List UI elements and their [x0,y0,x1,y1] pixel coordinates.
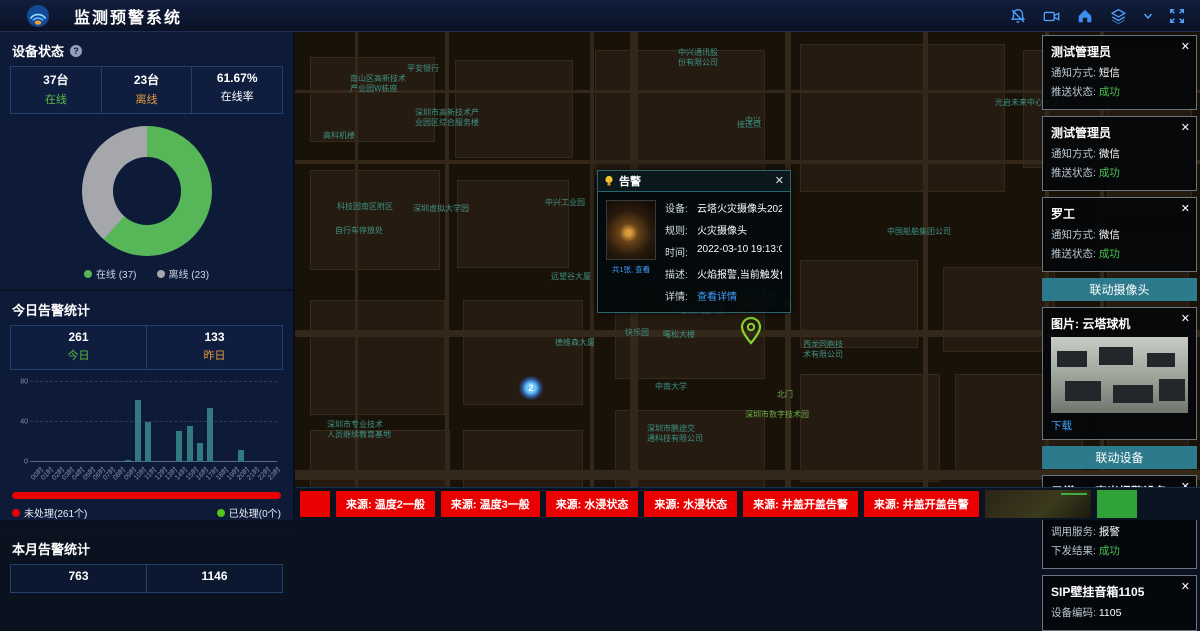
stat-value: 23台 [102,71,192,88]
stat-value: 133 [147,330,282,344]
map-label: 中南大学 [655,382,687,392]
bar [207,408,213,462]
legend-label: 离线 (23) [169,266,210,281]
card-field-row: 调用服务: 报警 [1051,524,1188,539]
camera-snapshot-card: ✕图片: 云塔球机下载 [1042,307,1197,440]
stat-cell: 61.67%在线率 [191,67,282,113]
alert-location-pin[interactable] [739,316,763,346]
stat-value: 37台 [11,71,101,88]
map-road [445,32,449,520]
card-title: 测试管理员 [1051,43,1174,60]
device-status-title: 设备状态 ? [10,36,283,66]
gridline [30,381,277,382]
notification-card: ✕罗工通知方式: 微信推送状态: 成功 [1042,197,1197,272]
card-field-value: 成功 [1099,167,1120,179]
map-label: 科技园南区附区 [337,202,393,212]
bar [145,422,151,462]
green-screen-thumbnail[interactable] [1097,490,1137,518]
close-icon[interactable]: ✕ [775,176,784,187]
page-title: 监测预警系统 [74,4,182,28]
close-icon[interactable]: ✕ [1181,202,1190,215]
alert-popup-header: 告警 ✕ [598,171,790,192]
map-label: 曙松大楼 [663,330,695,340]
header-toolbar [1009,7,1186,25]
stat-label: 离线 [102,91,192,107]
alert-source-box[interactable]: 来源: 水浸状态 [546,491,639,517]
card-title: 图片: 云塔球机 [1051,315,1174,332]
map-label: 远望谷大厦 [551,272,591,282]
map-label: 中国船舶集团公司 [887,227,951,237]
map-building [310,170,440,270]
stat-cell: 763 [11,565,146,592]
map-building [800,374,940,482]
progress-legend: 未处理(261个) 已处理(0个) [10,499,283,528]
notification-card: ✕测试管理员通知方式: 微信推送状态: 成功 [1042,116,1197,191]
layers-icon[interactable] [1109,7,1128,25]
gridline [30,421,277,422]
hourly-alerts-bar-chart: 0408000时01时02时03时04时05时06时07时08时09时10时11… [12,376,281,488]
device-cluster-dot[interactable]: 2 [519,376,543,400]
map-building [800,44,1005,192]
card-field-value: 成功 [1099,248,1120,260]
map-label: 西龙同胞技 术有限公司 [803,340,843,361]
legend-label: 在线 (37) [96,266,137,281]
month-alerts-title: 本月告警统计 [10,534,283,564]
legend-dot-icon [157,270,165,278]
map-label: 北门 [777,390,793,400]
download-link[interactable]: 下载 [1051,418,1188,433]
image-shape [1099,347,1133,365]
bar [238,450,244,462]
bar [197,443,203,462]
unprocessed-legend: 未处理(261个) [12,505,87,520]
map-label: 深圳市鹏途交 通科技有限公司 [647,424,703,445]
alert-snapshot-image[interactable] [606,200,656,260]
popup-field-label: 设备: [665,200,697,215]
legend-item: 离线 (23) [157,266,210,281]
map-label: 中兴工业园 [545,198,585,208]
map-label: 南山区高新技术 产业园W栋座 [350,74,406,95]
card-field-row: 推送状态: 成功 [1051,165,1188,180]
linked-cameras-header[interactable]: 联动摄像头 [1042,278,1197,301]
section-title-text: 今日告警统计 [12,300,90,319]
app-header: 监测预警系统 [0,0,1200,32]
bar [125,460,131,462]
alert-popup-fields: 设备:云塔火灾摄像头202规则:火灾摄像头时间:2022-03-10 19:13… [665,200,782,303]
map-building [943,267,1055,352]
month-alerts-stats: 7631146 [10,564,283,593]
stat-cell: 23台离线 [101,67,192,113]
popup-field-row: 描述:火焰报警,当前触发值为 [665,266,782,281]
alert-popup-body: 共1张, 查看 设备:云塔火灾摄像头202规则:火灾摄像头时间:2022-03-… [598,192,790,312]
map-label: 深圳虚拟大学园 [413,204,469,214]
stat-cell: 261今日 [11,326,146,369]
alert-popup: 告警 ✕ 共1张, 查看 设备:云塔火灾摄像头202规则:火灾摄像头时间:202… [597,170,791,313]
section-title-text: 本月告警统计 [12,539,90,558]
stat-cell: 133昨日 [146,326,282,369]
stat-label: 昨日 [147,347,282,363]
map-label: 德维森大厦 [555,338,595,348]
donut-legend: 在线 (37)离线 (23) [10,258,283,289]
app-root: 监测预警系统 设备状态 ? [0,0,1200,520]
card-field-row: 设备编码: 1105 [1051,605,1188,620]
right-sidebar: ✕测试管理员通知方式: 短信推送状态: 成功✕测试管理员通知方式: 微信推送状态… [1042,35,1197,631]
alert-source-box[interactable]: 来源: 温度2一般 [336,491,435,517]
close-icon[interactable]: ✕ [1181,121,1190,134]
fullscreen-icon[interactable] [1168,7,1186,25]
y-tick-label: 80 [14,379,28,386]
left-sidebar: 设备状态 ? 37台在线23台离线61.67%在线率 在线 (37)离线 (23… [0,32,295,520]
map-label: 深圳市高新技术产 业园区综合服务楼 [415,108,479,129]
popup-field-label: 规则: [665,222,697,237]
popup-field-value: 火灾摄像头 [697,222,747,237]
stat-value: 261 [11,330,146,344]
device-status-stats: 37台在线23台离线61.67%在线率 [10,66,283,114]
alert-source-box[interactable]: 来源: 井盖开盖告警 [743,491,858,517]
alert-popup-title: 告警 [619,173,770,189]
image-shape [1113,385,1153,403]
linked-device-card: ✕SIP壁挂音箱1105设备编码: 1105 [1042,575,1197,631]
card-field-value: 微信 [1099,148,1120,160]
linked-devices-header[interactable]: 联动设备 [1042,446,1197,469]
card-title: 测试管理员 [1051,124,1174,141]
chevron-down-icon[interactable] [1143,11,1153,21]
device-status-section: 设备状态 ? 37台在线23台离线61.67%在线率 在线 (37)离线 (23… [0,32,293,289]
map-label: 深圳市数字技术园 [745,410,809,420]
section-title-text: 设备状态 [12,41,64,60]
image-shape [1159,379,1185,401]
card-field-row: 通知方式: 微信 [1051,227,1188,242]
popup-field-row: 详情:查看详情 [665,288,782,303]
alert-source-box[interactable]: 来源: 水浸状态 [644,491,737,517]
home-icon[interactable] [1076,7,1094,25]
notification-card: ✕测试管理员通知方式: 短信推送状态: 成功 [1042,35,1197,110]
popup-field-row: 时间:2022-03-10 19:13:07 [665,244,782,259]
processed-legend: 已处理(0个) [217,505,281,520]
stat-value: 763 [11,569,146,583]
legend-dot-icon [84,270,92,278]
stat-label: 在线率 [192,88,282,104]
card-field-value: 微信 [1099,229,1120,241]
video-camera-icon[interactable] [1042,7,1061,25]
card-field-row: 通知方式: 短信 [1051,65,1188,80]
card-field-row: 推送状态: 成功 [1051,84,1188,99]
card-field-value: 短信 [1099,67,1120,79]
map-building [310,300,445,415]
map-building [457,180,569,268]
map-label: 深圳市专业技术 人员继续教育基地 [327,420,391,441]
legend-item: 在线 (37) [84,266,137,281]
card-field-row: 通知方式: 微信 [1051,146,1188,161]
card-field-value: 成功 [1099,86,1120,98]
map-road [923,32,928,520]
map-label: 高科机楼 [323,131,355,141]
bar [135,400,141,462]
stat-cell: 37台在线 [11,67,101,113]
image-shape [1147,353,1175,367]
card-field-row: 下发结果: 成功 [1051,543,1188,558]
y-tick-label: 0 [14,459,28,466]
stat-cell: 1146 [146,565,282,592]
popup-field-label: 描述: [665,266,697,281]
y-tick-label: 40 [14,419,28,426]
camera-feed-thumbnail[interactable] [985,490,1091,518]
stat-value: 61.67% [192,71,282,85]
image-shape [1065,381,1101,401]
close-icon[interactable]: ✕ [1181,312,1190,325]
popup-field-value: 2022-03-10 19:13:07 [697,244,782,259]
alert-source-box[interactable] [300,491,330,517]
month-alerts-section: 本月告警统计 7631146 [0,528,293,593]
alert-progress-bar [12,492,281,499]
app-logo-icon [26,4,50,28]
map-label: 接送点 [737,120,761,130]
map-road [355,32,358,520]
close-icon[interactable]: ✕ [1181,580,1190,593]
device-status-donut-chart [82,126,212,256]
help-icon[interactable]: ? [70,45,82,57]
map-label: 平安银行 [407,64,439,74]
popup-field-value: 火焰报警,当前触发值为 [697,266,782,281]
card-field-value: 报警 [1099,526,1120,538]
notification-off-icon[interactable] [1009,7,1027,25]
bottom-alert-bar: 来源: 温度2一般来源: 温度3一般来源: 水浸状态来源: 水浸状态来源: 井盖… [295,487,1200,520]
today-alerts-stats: 261今日133昨日 [10,325,283,370]
view-photos-link[interactable]: 共1张, 查看 [606,264,656,275]
image-shape [1057,351,1087,367]
popup-field-label: 详情: [665,288,697,303]
popup-field-row: 规则:火灾摄像头 [665,222,782,237]
alarm-bulb-icon [604,175,614,187]
stat-value: 1146 [147,569,282,583]
map-label: 自行车停放处 [335,226,383,236]
camera-snapshot-image[interactable] [1051,337,1188,413]
popup-field-value: 云塔火灾摄像头202 [697,200,782,215]
card-title: 罗工 [1051,205,1174,222]
bar [176,431,182,462]
card-field-value: 1105 [1099,607,1122,619]
map-label: 中兴通讯股 份有限公司 [678,48,718,69]
stat-label: 今日 [11,347,146,363]
today-alerts-title: 今日告警统计 [10,295,283,325]
view-details-link[interactable]: 查看详情 [697,288,737,303]
alert-source-box[interactable]: 来源: 井盖开盖告警 [864,491,979,517]
popup-field-row: 设备:云塔火灾摄像头202 [665,200,782,215]
bar [187,426,193,462]
alert-source-box[interactable]: 来源: 温度3一般 [441,491,540,517]
popup-field-label: 时间: [665,244,697,259]
today-alerts-section: 今日告警统计 261今日133昨日 0408000时01时02时03时04时05… [0,289,293,528]
card-field-value: 成功 [1099,545,1120,557]
card-field-row: 推送状态: 成功 [1051,246,1188,261]
stat-label: 在线 [11,91,101,107]
card-title: SIP壁挂音箱1105 [1051,583,1174,600]
map-label: 快乐园 [625,328,649,338]
close-icon[interactable]: ✕ [1181,40,1190,53]
